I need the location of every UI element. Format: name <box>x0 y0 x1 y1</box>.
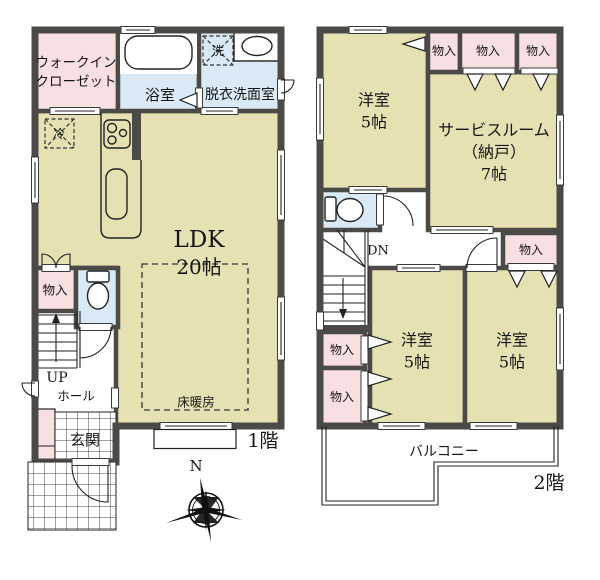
storage-left-1-label: 物入 <box>330 343 354 357</box>
wic-label-line2: クローゼット <box>36 74 117 90</box>
washroom-label: 脱衣洗面室 <box>205 86 275 103</box>
storage-right-label: 物入 <box>519 243 543 257</box>
bathroom-label: 浴室 <box>145 86 175 104</box>
balcony-label: バルコニー <box>409 444 479 460</box>
floorplan-canvas: 冷 洗 <box>0 0 600 580</box>
room-western-top-left <box>320 30 428 190</box>
floor1-plan: 冷 洗 <box>22 27 294 543</box>
washer-label: 洗 <box>212 44 224 58</box>
toilet-tank-2f <box>325 197 336 221</box>
compass-north-label: N <box>189 457 202 475</box>
service-room-label-line2: （納戸） <box>462 143 526 162</box>
floor1-label: 1階 <box>247 430 278 452</box>
storage-1f-label: 物入 <box>42 283 68 298</box>
service-room-label-line1: サービスルーム <box>438 121 550 140</box>
storage-top-3-label: 物入 <box>526 44 550 58</box>
compass-icon: N <box>166 457 242 542</box>
entrance-label: 玄関 <box>70 431 100 449</box>
ldk-size-label: 20帖 <box>176 255 221 279</box>
storage-top-1-label: 物入 <box>432 44 456 58</box>
toilet-bowl-2f <box>337 199 363 222</box>
western-br-size: 5帖 <box>499 353 525 372</box>
floor2-plan: 洋室 5帖 物入 物入 物入 サービスルーム （納戸） 7帖 物入 DN 物入 … <box>317 27 565 506</box>
toilet-tank-1f <box>87 271 109 282</box>
toilet-bowl-1f <box>88 283 109 309</box>
stairs-down-label: DN <box>367 244 389 259</box>
service-room-label-line3: 7帖 <box>481 165 507 184</box>
wic-label-line1: ウォークイン <box>36 55 117 71</box>
balcony-outline <box>322 426 558 505</box>
western-bm-size: 5帖 <box>404 353 430 372</box>
storage-top-2-label: 物入 <box>476 44 500 58</box>
wall-under-stairs <box>320 325 368 332</box>
kitchen-wall-stub <box>132 111 141 160</box>
floor2-label: 2階 <box>533 472 564 494</box>
hall-label: ホール <box>57 389 95 404</box>
floor-heating-label: 床暖房 <box>177 395 215 410</box>
western-br-label: 洋室 <box>496 331 528 350</box>
ldk-label: LDK <box>174 227 226 253</box>
terrace-step <box>154 430 236 449</box>
storage-left-2-label: 物入 <box>330 390 354 404</box>
western-bm-label: 洋室 <box>401 331 433 350</box>
floorplan-svg: 冷 洗 <box>0 0 600 580</box>
western-tl-size: 5帖 <box>361 113 387 132</box>
western-tl-label: 洋室 <box>358 91 390 110</box>
stairs-down-arrow <box>339 309 347 319</box>
fridge-label: 冷 <box>53 127 65 141</box>
stairs-up-label: UP <box>46 370 67 386</box>
